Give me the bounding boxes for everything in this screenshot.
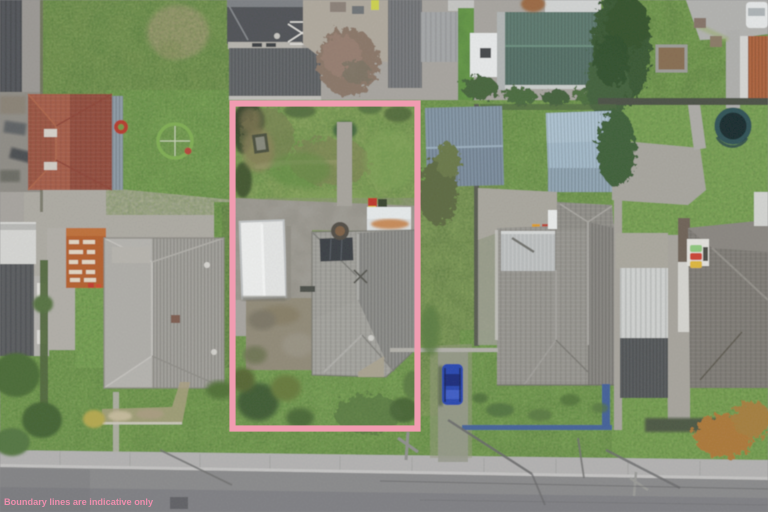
svg-text:Boundary lines are indicative: Boundary lines are indicative only	[4, 497, 154, 507]
